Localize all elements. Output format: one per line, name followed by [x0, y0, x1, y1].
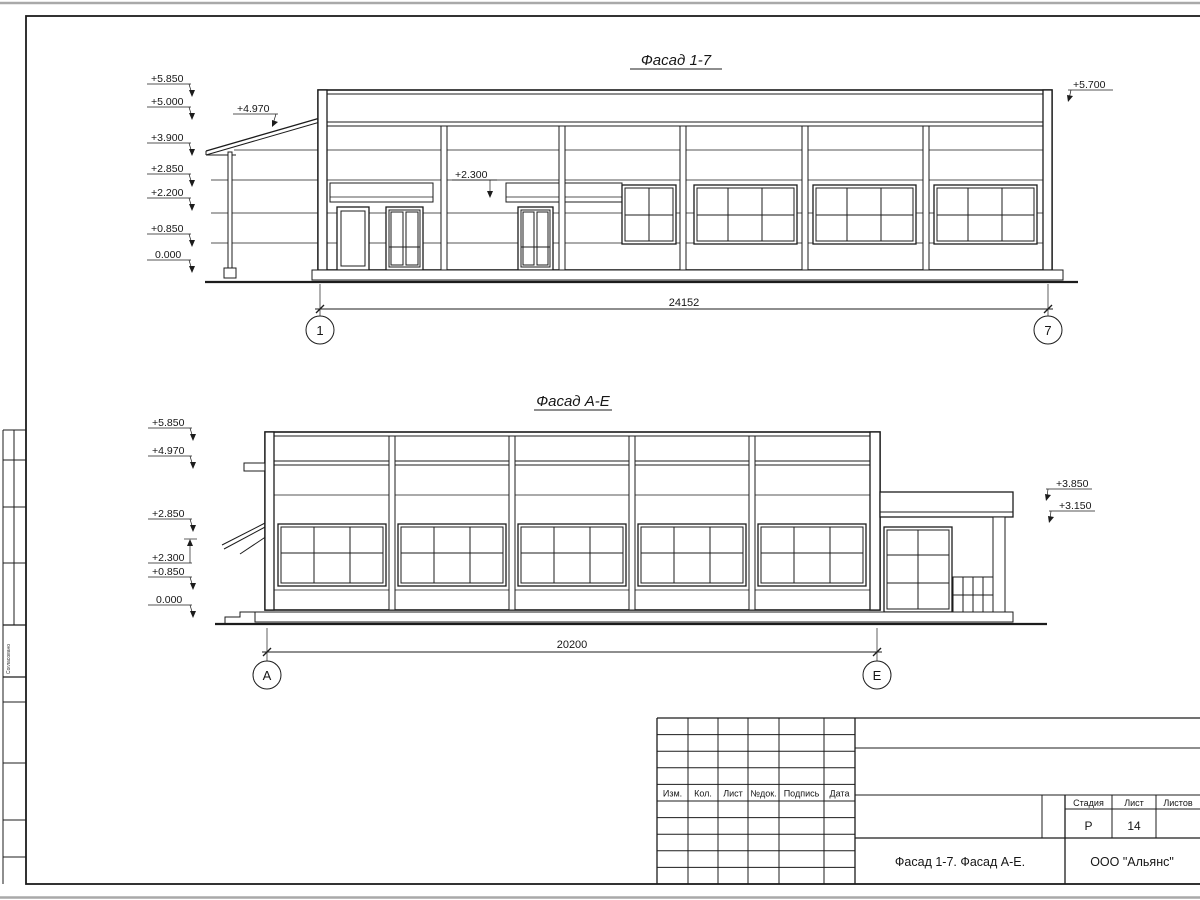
svg-text:+2.850: +2.850 — [151, 163, 184, 175]
window — [398, 524, 506, 586]
facade-title: Фасад А-Е — [536, 393, 611, 410]
column-header: Кол. — [694, 789, 712, 799]
axis-label: 7 — [1044, 323, 1051, 338]
elevation-mark: +5.000 — [147, 96, 195, 120]
window — [622, 185, 676, 244]
axis-circle-a: А — [253, 661, 281, 689]
window — [884, 527, 952, 612]
svg-text:+5.000: +5.000 — [151, 96, 184, 108]
sheet-frame — [26, 16, 1200, 884]
elevation-mark: +2.300 — [452, 169, 497, 198]
windows — [278, 524, 866, 586]
wall-protrusion — [244, 463, 265, 471]
column-header: №док. — [750, 789, 776, 799]
entrance-lintels — [330, 126, 622, 270]
plinth — [312, 270, 1063, 280]
stage-label: Стадия — [1073, 798, 1104, 808]
dimension-line: 24152 — [315, 284, 1053, 316]
window — [278, 524, 386, 586]
elevation-mark: +5.850 — [148, 417, 196, 441]
porch-post — [224, 152, 236, 278]
svg-text:+5.850: +5.850 — [152, 417, 185, 429]
revision-table-header: Изм. Кол. Лист №док. Подпись Дата — [663, 789, 850, 799]
dimension-label: 24152 — [669, 297, 700, 309]
sheets-total-label: Листов — [1163, 798, 1192, 808]
window — [758, 524, 866, 586]
svg-text:+2.300: +2.300 — [455, 169, 488, 181]
axis-label: 1 — [316, 323, 323, 338]
axis-circle-7: 7 — [1034, 316, 1062, 344]
plinth — [255, 612, 1013, 622]
axis-label: А — [263, 668, 272, 683]
side-stamp-vertical-text: Согласовано — [6, 644, 12, 674]
svg-text:+2.850: +2.850 — [152, 508, 185, 520]
window — [813, 185, 916, 244]
side-stamp: Согласовано — [3, 430, 26, 884]
svg-text:0.000: 0.000 — [155, 249, 181, 261]
axis-circle-1: 1 — [306, 316, 334, 344]
elevation-mark: +0.850 — [148, 566, 196, 590]
elevation-mark: +5.850 — [147, 73, 195, 97]
elevation-mark: +3.150 — [1048, 500, 1095, 523]
sheet-label: Лист — [1124, 798, 1144, 808]
svg-text:+0.850: +0.850 — [151, 223, 184, 235]
elevation-mark: +0.850 — [147, 223, 195, 247]
door — [386, 207, 423, 270]
elevation-mark: +5.700 — [1067, 79, 1113, 102]
facade-1-7-view: Фасад 1-7 — [147, 52, 1113, 344]
stage-value: Р — [1084, 819, 1092, 833]
svg-text:+5.850: +5.850 — [151, 73, 184, 85]
column-header: Подпись — [784, 789, 820, 799]
elevation-mark: 0.000 — [147, 249, 195, 273]
drawing-canvas: Согласовано Фасад 1-7 — [0, 0, 1200, 900]
axis-circle-e: Е — [863, 661, 891, 689]
svg-text:+2.200: +2.200 — [151, 187, 184, 199]
elevation-mark: 0.000 — [148, 594, 196, 618]
company-name: ООО "Альянс" — [1090, 855, 1174, 869]
stage-sheet-table: Стадия Лист Листов Р 14 — [1073, 798, 1193, 833]
elevation-mark: +4.970 — [233, 103, 278, 127]
column-header: Лист — [723, 789, 743, 799]
svg-text:0.000: 0.000 — [156, 594, 182, 606]
side-canopy — [222, 522, 267, 554]
elevation-marks-right: +3.850 +3.150 — [1045, 478, 1095, 523]
svg-text:+4.970: +4.970 — [152, 445, 185, 457]
elevation-mark: +4.970 — [148, 445, 196, 469]
elevation-mark: +2.850 — [148, 508, 196, 532]
column-header: Изм. — [663, 789, 682, 799]
svg-text:+5.700: +5.700 — [1073, 79, 1106, 91]
porch-canopy — [206, 118, 320, 155]
elevation-mark: +2.200 — [147, 187, 195, 211]
grille — [953, 577, 993, 612]
doc-title: Фасад 1-7. Фасад А-Е. — [895, 855, 1025, 869]
elevation-mark: +2.300 — [148, 539, 197, 564]
svg-text:+4.970: +4.970 — [237, 103, 270, 115]
svg-text:+3.900: +3.900 — [151, 132, 184, 144]
window — [694, 185, 797, 244]
dimension-label: 20200 — [557, 639, 588, 651]
elevation-marks-left: +5.850 +5.000 +3.900 +2.850 — [147, 73, 195, 273]
window — [518, 524, 626, 586]
window — [934, 185, 1037, 244]
svg-text:+3.150: +3.150 — [1059, 500, 1092, 512]
axis-label: Е — [873, 668, 882, 683]
annex — [880, 492, 1013, 612]
window — [638, 524, 746, 586]
column-header: Дата — [830, 789, 850, 799]
drawing-sheet: Согласовано Фасад 1-7 — [0, 0, 1200, 900]
elevation-mark: +3.850 — [1045, 478, 1092, 501]
facade-title: Фасад 1-7 — [641, 52, 712, 69]
svg-text:+0.850: +0.850 — [152, 566, 185, 578]
door — [337, 207, 369, 270]
svg-text:+2.300: +2.300 — [152, 552, 185, 564]
elevation-mark: +3.900 — [147, 132, 195, 156]
dimension-line: 20200 — [262, 628, 882, 661]
sheet-value: 14 — [1127, 819, 1141, 833]
svg-text:+3.850: +3.850 — [1056, 478, 1089, 490]
facade-a-e-view: Фасад А-Е — [148, 393, 1095, 689]
elevation-marks-left: +5.850 +4.970 +2.850 +2.300 — [148, 417, 197, 618]
door — [518, 207, 553, 270]
elevation-mark: +2.850 — [147, 163, 195, 187]
title-block: Изм. Кол. Лист №док. Подпись Дата Стадия… — [657, 718, 1200, 884]
